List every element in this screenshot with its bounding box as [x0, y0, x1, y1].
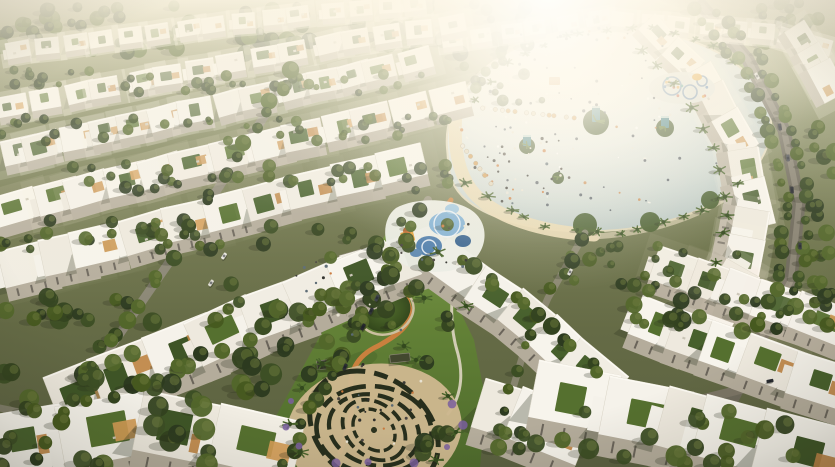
- layer-fx: [0, 0, 835, 467]
- aerial-community-render: [0, 0, 835, 467]
- scene-canvas: [0, 0, 835, 467]
- vignette-overlay: [0, 0, 835, 467]
